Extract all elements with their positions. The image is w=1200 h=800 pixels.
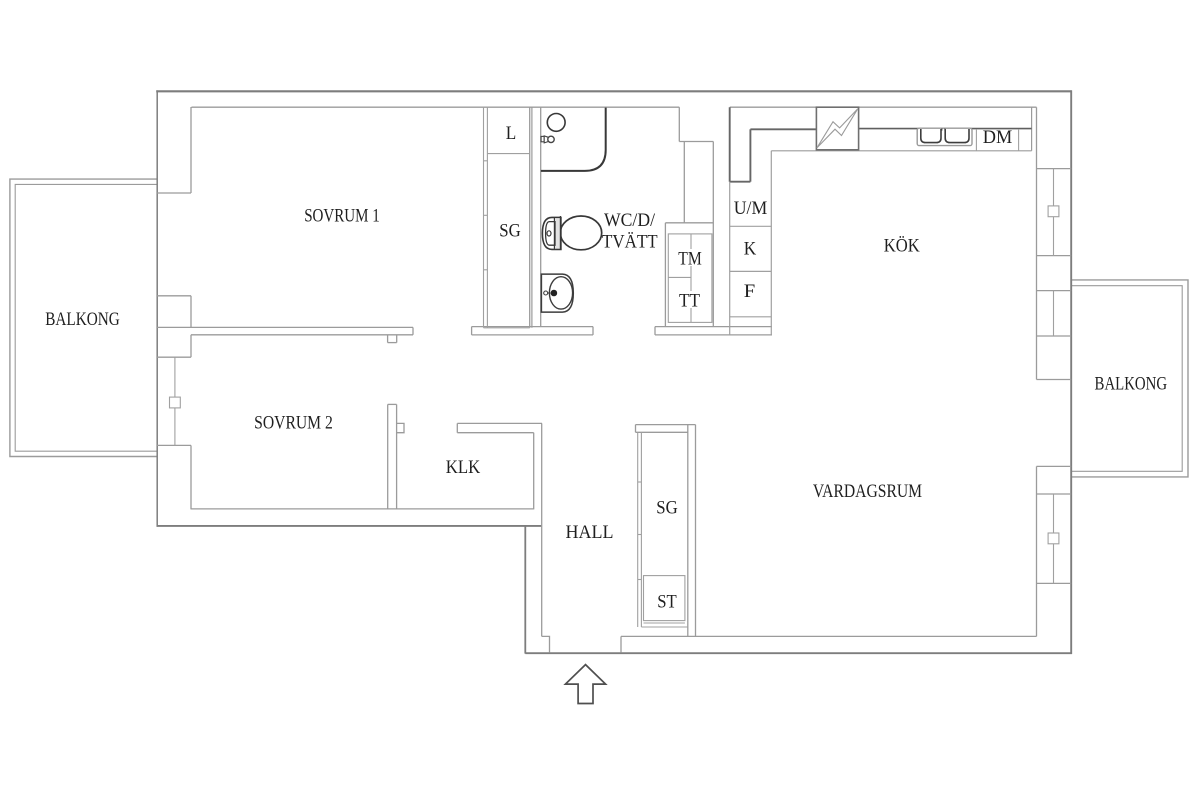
svg-text:SOVRUM 1: SOVRUM 1 <box>304 207 380 227</box>
svg-text:BALKONG: BALKONG <box>1095 375 1168 395</box>
svg-text:BALKONG: BALKONG <box>45 310 120 330</box>
svg-text:TM: TM <box>678 249 702 269</box>
svg-text:DM: DM <box>983 128 1013 148</box>
svg-text:SG: SG <box>656 498 678 518</box>
svg-text:TT: TT <box>679 292 700 312</box>
svg-text:SG: SG <box>499 221 521 241</box>
svg-text:HALL: HALL <box>566 523 614 543</box>
svg-text:SOVRUM 2: SOVRUM 2 <box>254 413 333 433</box>
svg-text:VARDAGSRUM: VARDAGSRUM <box>813 482 922 502</box>
svg-text:ST: ST <box>657 593 677 613</box>
svg-text:WC/D/: WC/D/ <box>604 211 656 231</box>
svg-text:U/M: U/M <box>734 199 768 219</box>
svg-text:KÖK: KÖK <box>884 236 921 257</box>
svg-text:TVÄTT: TVÄTT <box>602 231 658 252</box>
svg-text:KLK: KLK <box>446 458 481 478</box>
svg-text:K: K <box>744 239 757 259</box>
svg-text:F: F <box>744 282 756 302</box>
svg-text:L: L <box>506 124 517 144</box>
